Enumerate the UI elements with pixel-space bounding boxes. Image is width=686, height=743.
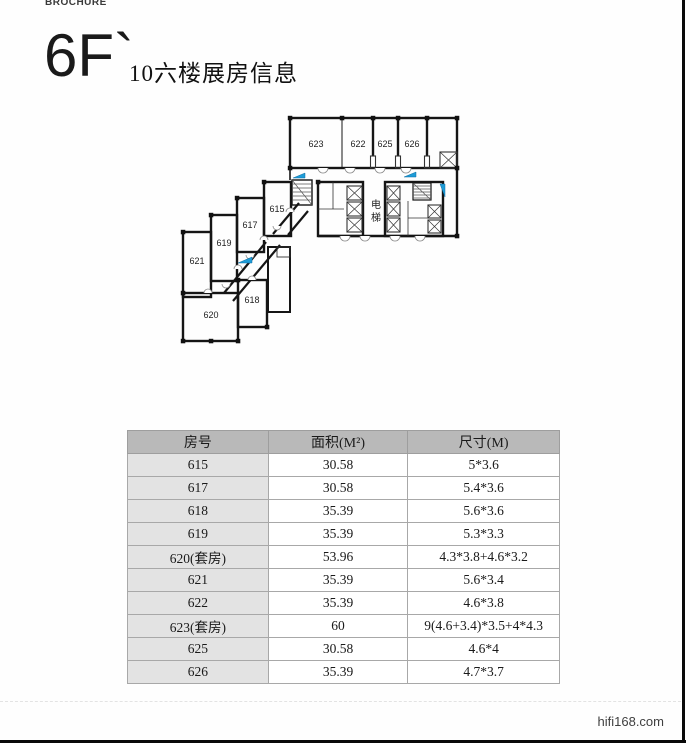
- cell-room: 622: [128, 592, 269, 615]
- table-header-row: 房号 面积(M²) 尺寸(M): [128, 431, 560, 454]
- cell-area: 35.39: [268, 500, 407, 523]
- header-dimensions: 尺寸(M): [408, 431, 560, 454]
- table-row: 620(套房)53.964.3*3.8+4.6*3.2: [128, 546, 560, 569]
- watermark: hifi168.com: [598, 714, 664, 729]
- room-label-625: 625: [377, 139, 392, 149]
- room-info-table: 房号 面积(M²) 尺寸(M) 61530.585*3.6 61730.585.…: [127, 430, 560, 684]
- cell-area: 35.39: [268, 592, 407, 615]
- table-row: 61935.395.3*3.3: [128, 523, 560, 546]
- cell-dim: 5.3*3.3: [408, 523, 560, 546]
- room-label-622: 622: [350, 139, 365, 149]
- brochure-page: BROCHURE 6F` 10六楼展房信息: [0, 0, 686, 743]
- header-area: 面积(M²): [268, 431, 407, 454]
- cell-dim: 4.7*3.7: [408, 661, 560, 684]
- cell-dim: 5.4*3.6: [408, 477, 560, 500]
- cell-area: 30.58: [268, 638, 407, 661]
- table-row: 61835.395.6*3.6: [128, 500, 560, 523]
- cell-dim: 9(4.6+3.4)*3.5+4*4.3: [408, 615, 560, 638]
- room-label-618: 618: [244, 295, 259, 305]
- cell-room: 621: [128, 569, 269, 592]
- cell-dim: 5*3.6: [408, 454, 560, 477]
- page-title: 10六楼展房信息: [129, 54, 298, 88]
- cell-area: 30.58: [268, 454, 407, 477]
- cell-room: 625: [128, 638, 269, 661]
- walls: [183, 118, 457, 341]
- cell-dim: 4.6*3.8: [408, 592, 560, 615]
- page-right-border: [682, 0, 685, 743]
- table-row: 62530.584.6*4: [128, 638, 560, 661]
- column-markers: [181, 116, 460, 343]
- cell-dim: 4.3*3.8+4.6*3.2: [408, 546, 560, 569]
- brand-text: BROCHURE: [45, 0, 107, 8]
- room-label-619: 619: [216, 238, 231, 248]
- table-row: 62135.395.6*3.4: [128, 569, 560, 592]
- table-row: 61730.585.4*3.6: [128, 477, 560, 500]
- cell-area: 30.58: [268, 477, 407, 500]
- cell-area: 35.39: [268, 523, 407, 546]
- room-label-615: 615: [269, 204, 284, 214]
- cell-dim: 5.6*3.6: [408, 500, 560, 523]
- cell-dim: 5.6*3.4: [408, 569, 560, 592]
- header-room-number: 房号: [128, 431, 269, 454]
- elevator-label: 电梯: [369, 198, 381, 225]
- cell-room: 615: [128, 454, 269, 477]
- cell-area: 60: [268, 615, 407, 638]
- cell-room: 619: [128, 523, 269, 546]
- room-label-620: 620: [203, 310, 218, 320]
- table-row: 623(套房)609(4.6+3.4)*3.5+4*4.3: [128, 615, 560, 638]
- cell-dim: 4.6*4: [408, 638, 560, 661]
- table-row: 61530.585*3.6: [128, 454, 560, 477]
- floor-plan-drawing: 623 622 625 626 615 617 619 621 620 618 …: [178, 106, 478, 348]
- table-row: 62635.394.7*3.7: [128, 661, 560, 684]
- cell-room: 617: [128, 477, 269, 500]
- table-row: 62235.394.6*3.8: [128, 592, 560, 615]
- cell-room: 626: [128, 661, 269, 684]
- floor-label: 6F`: [44, 26, 134, 86]
- cell-area: 35.39: [268, 661, 407, 684]
- accent-flag-icons: [238, 172, 445, 263]
- floor-plan: 623 622 625 626 615 617 619 621 620 618 …: [178, 106, 478, 348]
- cell-room: 618: [128, 500, 269, 523]
- fold-line: [0, 701, 681, 702]
- room-label-621: 621: [189, 256, 204, 266]
- room-label-626: 626: [404, 139, 419, 149]
- room-label-617: 617: [242, 220, 257, 230]
- cell-area: 35.39: [268, 569, 407, 592]
- cell-area: 53.96: [268, 546, 407, 569]
- cell-room: 623(套房): [128, 615, 269, 638]
- cell-room: 620(套房): [128, 546, 269, 569]
- room-label-623: 623: [308, 139, 323, 149]
